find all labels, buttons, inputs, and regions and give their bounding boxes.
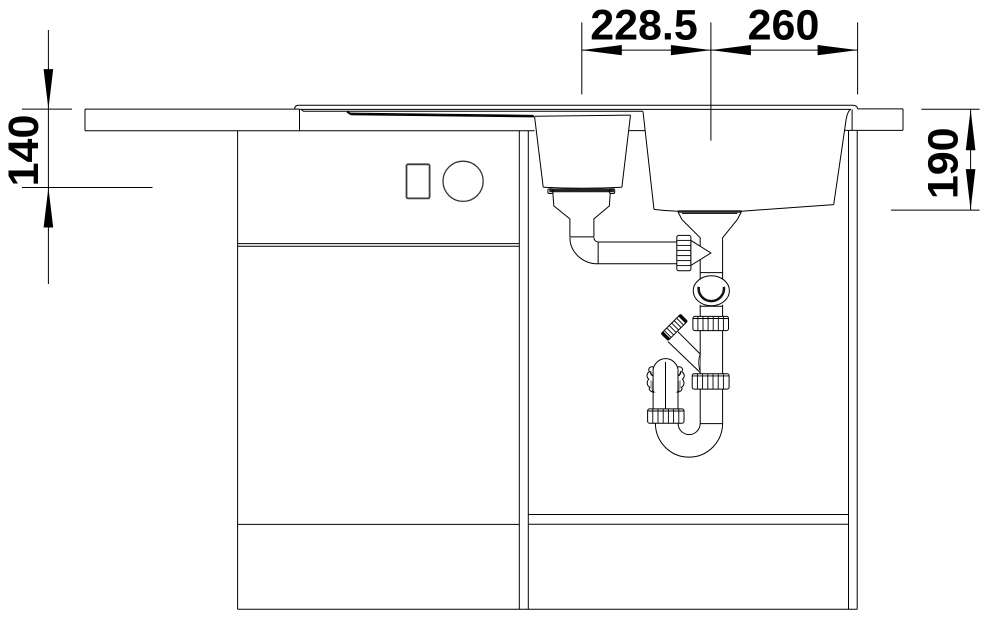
svg-text:260: 260 [748,2,820,50]
svg-text:140: 140 [0,115,48,187]
svg-text:190: 190 [919,127,967,199]
svg-text:228.5: 228.5 [590,2,698,50]
